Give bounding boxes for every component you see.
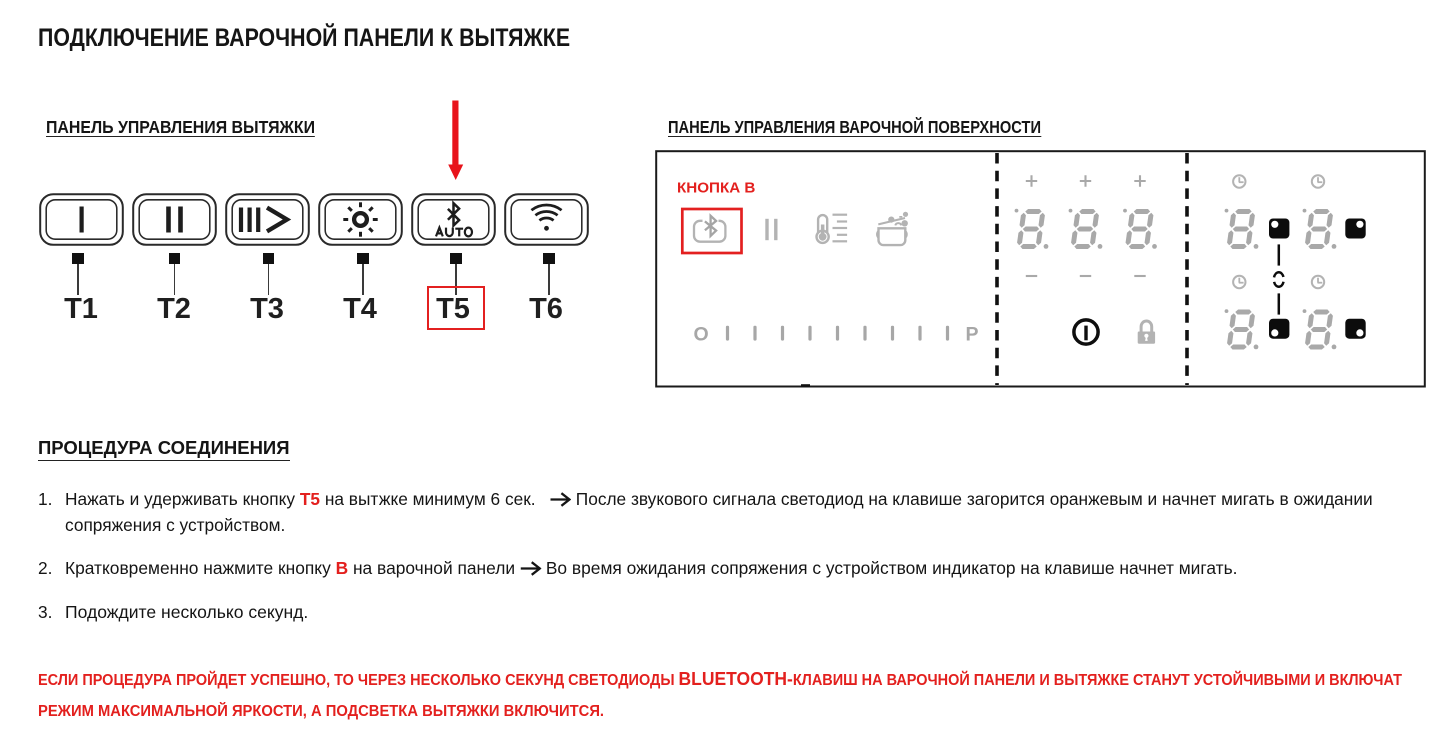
- svg-text:O: O: [694, 324, 709, 346]
- svg-text:КНОПКА В: КНОПКА В: [677, 180, 755, 197]
- svg-text:P: P: [966, 324, 979, 346]
